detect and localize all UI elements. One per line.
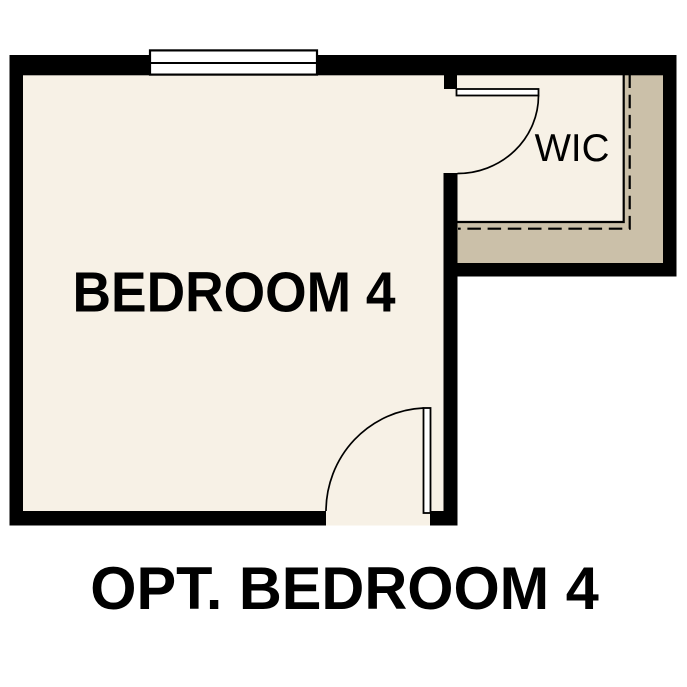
svg-text:BEDROOM 4: BEDROOM 4 xyxy=(73,261,396,325)
svg-text:OPT. BEDROOM 4: OPT. BEDROOM 4 xyxy=(90,554,599,622)
svg-text:WIC: WIC xyxy=(535,127,610,170)
